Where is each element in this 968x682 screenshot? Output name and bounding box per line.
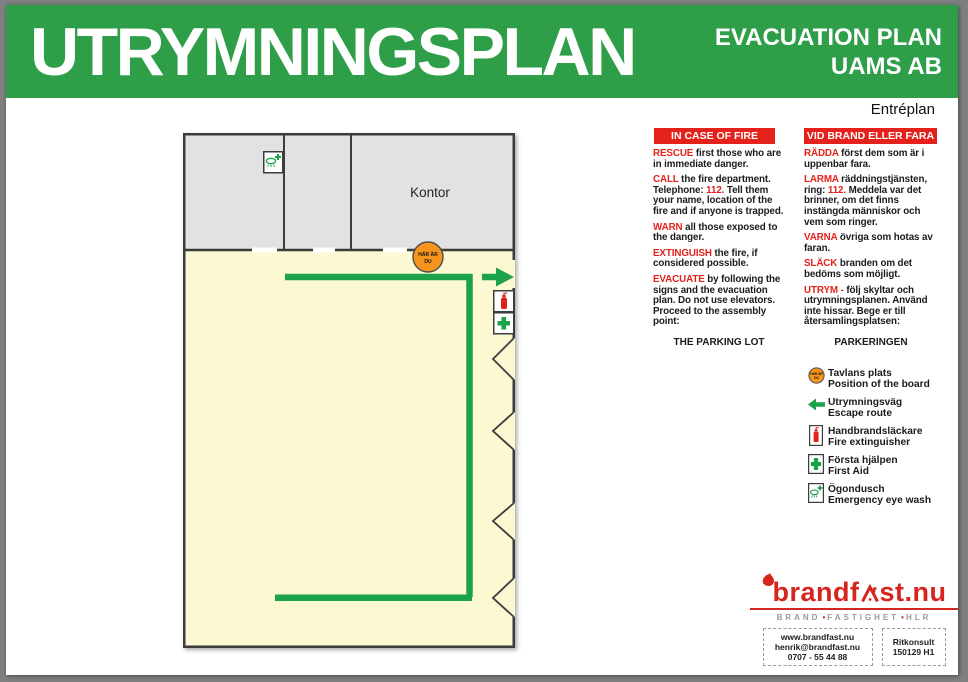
contact-info-box: www.brandfast.nu henrik@brandfast.nu 070…: [763, 628, 873, 666]
drawing-ref-line1: Ritkonsult: [887, 637, 941, 647]
tagline-word: HLR: [906, 613, 931, 622]
eye-wash-icon: [804, 483, 828, 506]
instruction-paragraph: RÄDDA först dem som är i uppenbar fara.: [804, 149, 938, 170]
instruction-paragraph: SLÄCK branden om det bedöms som möjligt.: [804, 259, 938, 280]
instruction-keyword: RÄDDA: [804, 148, 839, 159]
legend-label-en: Escape route: [828, 408, 902, 419]
brand-logo: brandf st.nu: [750, 576, 958, 606]
brand-tagline: BRAND•FASTIGHET•HLR: [750, 613, 958, 622]
legend-label-en: Emergency eye wash: [828, 495, 931, 506]
tagline-separator: •: [901, 613, 904, 622]
legend: HÄR ÄR DU Tavlans plats Position of the …: [804, 367, 964, 512]
fire-extinguisher-icon: [804, 425, 828, 448]
contact-website: www.brandfast.nu: [768, 632, 868, 642]
instruction-paragraph: VARNA övriga som hotas av faran.: [804, 233, 938, 254]
page-title: UTRYMNINGSPLAN: [30, 18, 635, 86]
instruction-keyword: RESCUE: [653, 148, 693, 159]
footer-brand-block: brandf st.nu BRAND•FASTIGHET•HLR www.bra…: [750, 576, 958, 666]
instruction-keyword: EVACUATE: [653, 274, 705, 285]
instructions-english-header: IN CASE OF FIRE: [654, 128, 775, 144]
escape-route-arrow-icon: [804, 396, 828, 419]
legend-label-sv: Tavlans plats: [828, 368, 930, 379]
header-subtitle-line2: UAMS AB: [715, 52, 942, 81]
first-aid-icon: [804, 454, 828, 477]
assembly-point-english: THE PARKING LOT: [653, 337, 785, 348]
instruction-paragraph: EXTINGUISH the fire, if considered possi…: [653, 249, 785, 270]
room-label: Kontor: [410, 185, 450, 200]
rooms-area: [183, 133, 515, 250]
legend-label-sv: Första hjälpen: [828, 455, 898, 466]
instruction-keyword: SLÄCK: [804, 258, 837, 269]
legend-label-sv: Handbrandsläckare: [828, 426, 923, 437]
instruction-keyword: VARNA: [804, 232, 837, 243]
legend-item: Utrymningsväg Escape route: [804, 396, 964, 419]
first-aid-icon: [494, 313, 514, 334]
eye-wash-icon: [264, 152, 283, 173]
evacuation-plan-page: { "header": { "title": "UTRYMNINGSPLAN",…: [0, 0, 968, 682]
header-subtitle: EVACUATION PLAN UAMS AB: [715, 23, 942, 81]
legend-label-en: Fire extinguisher: [828, 437, 923, 448]
tagline-word: BRAND: [777, 613, 821, 622]
legend-label-en: Position of the board: [828, 379, 930, 390]
legend-item: HÄR ÄR DU Tavlans plats Position of the …: [804, 367, 964, 390]
instruction-paragraph: EVACUATE by following the signs and the …: [653, 275, 785, 328]
fire-extinguisher-icon: [494, 291, 514, 312]
you-are-here-text-1: HÄR ÄR: [418, 251, 438, 258]
svg-text:DU: DU: [814, 376, 819, 380]
instruction-keyword: 112.: [828, 185, 846, 196]
instruction-paragraph: UTRYM - följ skyltar och utrymningsplane…: [804, 286, 938, 328]
assembly-point-swedish: PARKERINGEN: [804, 337, 938, 348]
legend-item: Handbrandsläckare Fire extinguisher: [804, 425, 964, 448]
logo-underline: [750, 608, 958, 610]
door-openings: [252, 248, 407, 253]
document-page: UTRYMNINGSPLAN EVACUATION PLAN UAMS AB E…: [6, 5, 958, 675]
drawing-ref-line2: 150129 H1: [887, 647, 941, 657]
instruction-keyword: EXTINGUISH: [653, 248, 712, 259]
you-are-here-icon: HÄR ÄR DU: [804, 367, 828, 390]
instruction-paragraph: RESCUE first those who are in immediate …: [653, 149, 785, 170]
legend-item: Första hjälpen First Aid: [804, 454, 964, 477]
header-subtitle-line1: EVACUATION PLAN: [715, 23, 942, 52]
instruction-keyword: LARMA: [804, 174, 839, 185]
instruction-keyword: 112.: [706, 185, 724, 196]
contact-row: www.brandfast.nu henrik@brandfast.nu 070…: [750, 628, 958, 666]
instructions-english-paragraphs: RESCUE first those who are in immediate …: [653, 149, 785, 328]
legend-label-en: First Aid: [828, 466, 898, 477]
header-banner: UTRYMNINGSPLAN EVACUATION PLAN UAMS AB: [6, 5, 958, 98]
floor-plan: HÄR ÄR DU Kontor: [183, 133, 515, 648]
instruction-paragraph: CALL the fire department. Telephone: 112…: [653, 175, 785, 217]
instructions-swedish-paragraphs: RÄDDA först dem som är i uppenbar fara.L…: [804, 149, 938, 328]
tagline-word: FASTIGHET: [827, 613, 899, 622]
legend-label-sv: Ögondusch: [828, 484, 931, 495]
brand-logo-text-2: st.nu: [880, 579, 947, 606]
tagline-separator: •: [822, 613, 825, 622]
instruction-keyword: WARN: [653, 222, 683, 233]
instruction-paragraph: WARN all those exposed to the danger.: [653, 223, 785, 244]
floor-name-label: Entréplan: [871, 101, 935, 118]
instructions-swedish: VID BRAND ELLER FARA RÄDDA först dem som…: [804, 128, 938, 348]
roof-letter-icon: [861, 583, 879, 607]
contact-phone: 0707 - 55 44 88: [768, 652, 868, 662]
legend-item: Ögondusch Emergency eye wash: [804, 483, 964, 506]
instruction-keyword: CALL: [653, 174, 679, 185]
brand-logo-text-1: brandf: [773, 579, 860, 606]
contact-email: henrik@brandfast.nu: [768, 642, 868, 652]
instructions-swedish-header: VID BRAND ELLER FARA: [804, 128, 937, 144]
legend-label-sv: Utrymningsväg: [828, 397, 902, 408]
instructions-english: IN CASE OF FIRE RESCUE first those who a…: [653, 128, 785, 348]
instruction-paragraph: LARMA räddningstjänsten, ring: 112. Medd…: [804, 175, 938, 228]
you-are-here-icon: HÄR ÄR DU: [413, 242, 443, 272]
you-are-here-text-2: DU: [424, 259, 432, 265]
instruction-keyword: UTRYM -: [804, 285, 844, 296]
drawing-ref-box: Ritkonsult 150129 H1: [882, 628, 946, 666]
